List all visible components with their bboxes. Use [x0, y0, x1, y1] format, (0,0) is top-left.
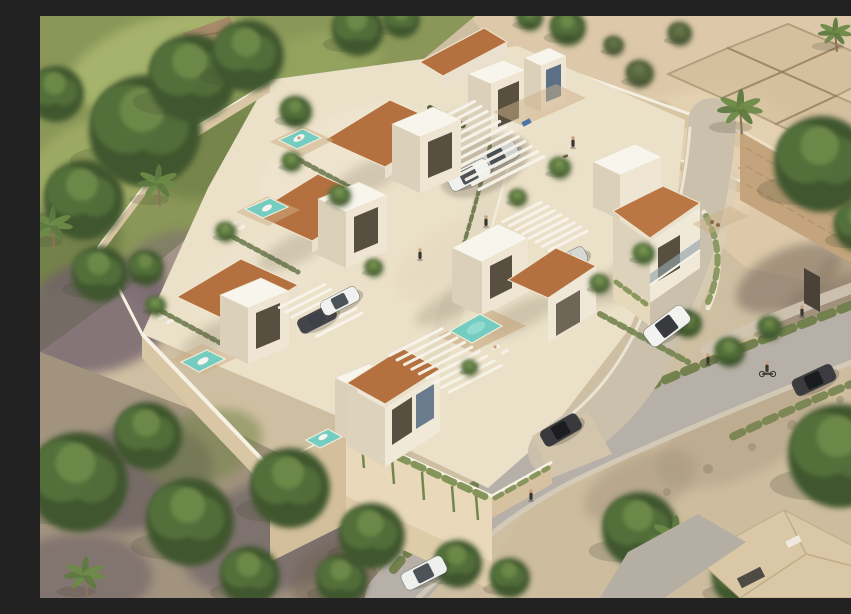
architectural-render — [40, 16, 851, 598]
terrace-chair — [710, 220, 714, 224]
gravel — [663, 488, 671, 496]
gravel — [703, 464, 713, 474]
swimmer — [493, 345, 496, 348]
terrace-chair — [716, 223, 720, 227]
gravel — [836, 396, 844, 404]
gravel — [748, 443, 756, 451]
scene-svg — [40, 16, 851, 598]
swimmer — [297, 136, 300, 139]
